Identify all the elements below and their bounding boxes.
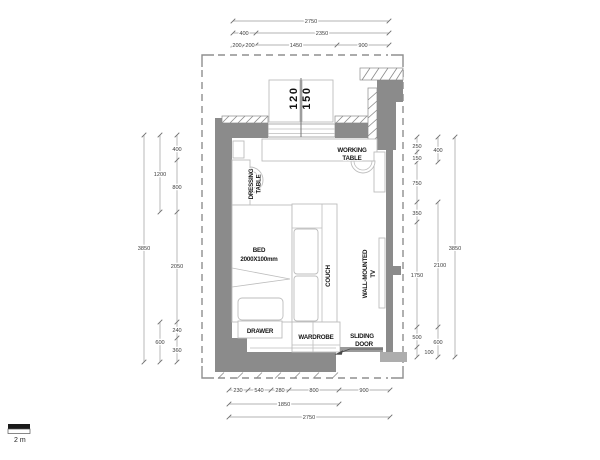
scale-bar: 2 m (8, 424, 30, 444)
window: 120 150 (268, 78, 335, 137)
desk-chair (351, 161, 375, 173)
dim-left-360: 360 (172, 348, 181, 354)
floor-plan-drawing: 120 150 WORKINGTABLE DRESSIN (0, 0, 600, 460)
dim-top-200b: 200 (245, 43, 254, 49)
window-mark-120: 120 (288, 86, 300, 109)
dim-left-1200: 1200 (154, 172, 166, 178)
dim-top-400: 400 (239, 31, 248, 37)
dimensions-left: 3850 1200 600 400 800 2050 240 360 (138, 133, 183, 365)
door-pier-footing (380, 352, 407, 362)
window-mark-150: 150 (301, 86, 313, 109)
dim-right-350: 350 (412, 211, 421, 217)
dim-top-200a: 200 (232, 43, 241, 49)
left-wall (215, 118, 232, 372)
dim-right-100: 100 (424, 350, 433, 356)
dimensions-right: 250 150 750 350 1750 500 100 400 2100 60… (411, 135, 461, 360)
top-right-pier-upper (377, 80, 403, 102)
dim-right-400: 400 (433, 148, 442, 154)
dim-right-750: 750 (412, 181, 421, 187)
dimensions-bottom: 230 540 280 800 900 1850 2750 (227, 388, 393, 421)
dim-top-2350: 2350 (316, 31, 328, 37)
bottom-wall (215, 352, 336, 372)
wardrobe-label: WARDROBE (298, 334, 333, 341)
right-wall-stub (393, 266, 401, 275)
dim-left-600: 600 (155, 340, 164, 346)
dim-bottom-230: 230 (233, 388, 242, 394)
dim-right-250: 250 (412, 144, 421, 150)
couch-cushion-1 (294, 229, 318, 274)
dim-right-500: 500 (412, 335, 421, 341)
floor-plan-page: 120 150 WORKINGTABLE DRESSIN (0, 0, 600, 460)
dim-left-800: 800 (172, 185, 181, 191)
tv (379, 238, 385, 308)
shelf (233, 141, 244, 158)
dim-top-1450: 1450 (290, 43, 302, 49)
dimensions-top: 2750 400 2350 200 200 1450 900 (231, 19, 392, 49)
dim-top-2750: 2750 (305, 19, 317, 25)
dim-bottom-2750: 2750 (303, 415, 315, 421)
drawer-label: DRAWER (247, 328, 274, 335)
side-shelf (374, 152, 385, 192)
dim-bottom-800: 800 (309, 388, 318, 394)
dim-right-150: 150 (412, 156, 421, 162)
dim-bottom-900: 900 (359, 388, 368, 394)
dim-right-600: 600 (433, 340, 442, 346)
couch-label: COUCH (325, 264, 332, 286)
couch-cushion-2 (294, 276, 318, 321)
top-wall-left (215, 123, 268, 138)
dim-left-2050: 2050 (171, 264, 183, 270)
dim-right-1750: 1750 (411, 273, 423, 279)
tv-label: WALL-MOUNTEDTV (362, 249, 377, 298)
sliding-door-label: SLIDINGDOOR (350, 333, 374, 348)
bed-pillow (238, 298, 283, 320)
dim-right-2100: 2100 (434, 263, 446, 269)
dim-bottom-280: 280 (275, 388, 284, 394)
right-wall (386, 150, 393, 352)
dim-left-3850: 3850 (138, 246, 150, 252)
dim-top-900: 900 (358, 43, 367, 49)
dim-left-400: 400 (172, 147, 181, 153)
dim-right-3850: 3850 (449, 246, 461, 252)
dim-left-240: 240 (172, 328, 181, 334)
scale-bar-label: 2 m (14, 437, 26, 444)
top-right-pier-lower (377, 102, 396, 150)
dim-bottom-540: 540 (254, 388, 263, 394)
dim-bottom-1850: 1850 (278, 402, 290, 408)
